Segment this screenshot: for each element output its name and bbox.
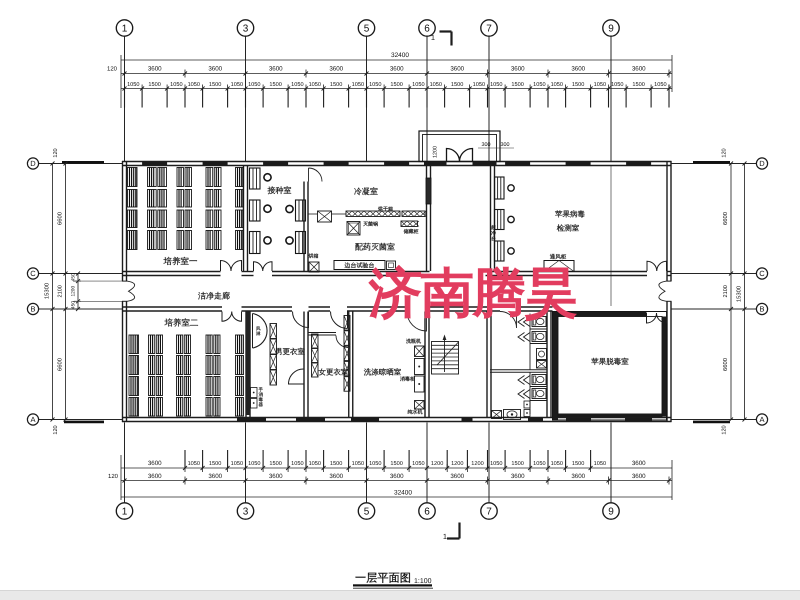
svg-text:3: 3 (243, 507, 249, 518)
svg-text:3600: 3600 (269, 66, 283, 73)
svg-text:6600: 6600 (722, 212, 729, 225)
svg-text:3600: 3600 (450, 66, 464, 73)
svg-text:C: C (759, 269, 765, 278)
svg-text:1050: 1050 (248, 82, 260, 88)
svg-text:B: B (30, 305, 35, 314)
svg-text:1500: 1500 (572, 461, 584, 467)
svg-text:1050: 1050 (551, 461, 563, 467)
svg-text:1500: 1500 (269, 82, 281, 88)
svg-text:300: 300 (482, 142, 491, 148)
svg-text:1: 1 (122, 507, 128, 518)
svg-text:3600: 3600 (632, 460, 646, 467)
svg-text:D: D (30, 159, 36, 168)
svg-text:1200: 1200 (431, 461, 443, 467)
svg-text:B: B (759, 305, 764, 314)
svg-text:5: 5 (364, 24, 370, 35)
svg-text:7: 7 (486, 507, 492, 518)
svg-text:1050: 1050 (412, 461, 424, 467)
svg-text:3600: 3600 (571, 66, 585, 73)
svg-text:1050: 1050 (654, 82, 666, 88)
svg-text:5: 5 (364, 507, 370, 518)
svg-text:3600: 3600 (632, 473, 646, 480)
svg-text:300: 300 (501, 142, 510, 148)
svg-text:3600: 3600 (208, 473, 222, 480)
svg-text:1500: 1500 (148, 82, 160, 88)
svg-text:3600: 3600 (571, 473, 585, 480)
svg-text:450: 450 (71, 273, 77, 281)
svg-text:1050: 1050 (352, 82, 364, 88)
svg-text:1200: 1200 (471, 461, 483, 467)
svg-text:1200: 1200 (433, 146, 439, 158)
svg-text:3600: 3600 (329, 473, 343, 480)
svg-text:1050: 1050 (594, 82, 606, 88)
svg-text:1500: 1500 (632, 82, 644, 88)
svg-text:1050: 1050 (231, 461, 243, 467)
svg-text:1500: 1500 (572, 82, 584, 88)
svg-text:6: 6 (424, 507, 430, 518)
svg-text:1050: 1050 (352, 461, 364, 467)
svg-text:1: 1 (443, 532, 447, 541)
svg-text:1500: 1500 (209, 461, 221, 467)
svg-text:120: 120 (53, 425, 59, 434)
svg-text:120: 120 (53, 148, 59, 157)
svg-text:450: 450 (71, 301, 77, 309)
svg-text:6600: 6600 (57, 212, 64, 225)
svg-text:1500: 1500 (390, 461, 402, 467)
svg-text:1500: 1500 (511, 461, 523, 467)
svg-text:2100: 2100 (723, 285, 729, 297)
svg-text:3600: 3600 (148, 473, 162, 480)
svg-text:3600: 3600 (511, 66, 525, 73)
svg-text:1: 1 (122, 24, 128, 35)
svg-text:3600: 3600 (148, 66, 162, 73)
svg-text:1050: 1050 (490, 82, 502, 88)
svg-text:3600: 3600 (511, 473, 525, 480)
svg-text:1500: 1500 (269, 461, 281, 467)
svg-text:1: 1 (431, 33, 435, 42)
svg-text:1050: 1050 (248, 461, 260, 467)
svg-text:120: 120 (722, 425, 728, 434)
svg-text:1050: 1050 (291, 82, 303, 88)
svg-text:1050: 1050 (188, 461, 200, 467)
svg-text:1050: 1050 (309, 82, 321, 88)
svg-text:1050: 1050 (127, 82, 139, 88)
svg-text:3600: 3600 (632, 66, 646, 73)
svg-text:3600: 3600 (269, 473, 283, 480)
svg-text:1:100: 1:100 (414, 578, 432, 585)
svg-text:1500: 1500 (511, 82, 523, 88)
svg-text:7: 7 (486, 24, 492, 35)
svg-text:1050: 1050 (430, 82, 442, 88)
svg-text:3600: 3600 (450, 473, 464, 480)
svg-text:15300: 15300 (44, 283, 51, 299)
svg-text:2100: 2100 (58, 285, 64, 297)
svg-text:A: A (759, 415, 764, 424)
svg-text:3600: 3600 (390, 66, 404, 73)
svg-text:1050: 1050 (533, 82, 545, 88)
svg-text:1050: 1050 (412, 82, 424, 88)
svg-text:6: 6 (424, 24, 430, 35)
svg-text:3600: 3600 (329, 66, 343, 73)
svg-text:9: 9 (608, 507, 614, 518)
svg-text:1050: 1050 (533, 461, 545, 467)
svg-text:1050: 1050 (611, 82, 623, 88)
svg-text:1500: 1500 (451, 82, 463, 88)
svg-text:3600: 3600 (148, 460, 162, 467)
svg-text:1050: 1050 (188, 82, 200, 88)
svg-text:1050: 1050 (473, 82, 485, 88)
svg-text:1500: 1500 (390, 82, 402, 88)
svg-text:6600: 6600 (722, 358, 729, 371)
svg-text:32400: 32400 (391, 52, 409, 59)
svg-text:6600: 6600 (57, 358, 64, 371)
svg-text:1050: 1050 (490, 461, 502, 467)
svg-text:1050: 1050 (369, 82, 381, 88)
svg-text:D: D (759, 159, 765, 168)
svg-text:1050: 1050 (291, 461, 303, 467)
svg-text:1500: 1500 (330, 82, 342, 88)
svg-text:3600: 3600 (208, 66, 222, 73)
svg-text:3: 3 (243, 24, 249, 35)
svg-text:1050: 1050 (551, 82, 563, 88)
svg-text:32400: 32400 (394, 490, 412, 497)
svg-text:15300: 15300 (736, 286, 743, 302)
svg-text:3600: 3600 (390, 473, 404, 480)
svg-text:1050: 1050 (231, 82, 243, 88)
svg-text:120: 120 (108, 473, 119, 480)
svg-text:C: C (30, 269, 36, 278)
svg-text:1050: 1050 (170, 82, 182, 88)
svg-text:1200: 1200 (71, 286, 77, 297)
svg-text:1500: 1500 (330, 461, 342, 467)
svg-text:120: 120 (107, 66, 118, 73)
svg-text:9: 9 (608, 24, 614, 35)
svg-text:A: A (30, 415, 35, 424)
svg-text:1050: 1050 (594, 461, 606, 467)
svg-text:1200: 1200 (451, 461, 463, 467)
svg-text:120: 120 (722, 148, 728, 157)
svg-text:1050: 1050 (369, 461, 381, 467)
svg-text:1050: 1050 (309, 461, 321, 467)
svg-text:1500: 1500 (209, 82, 221, 88)
